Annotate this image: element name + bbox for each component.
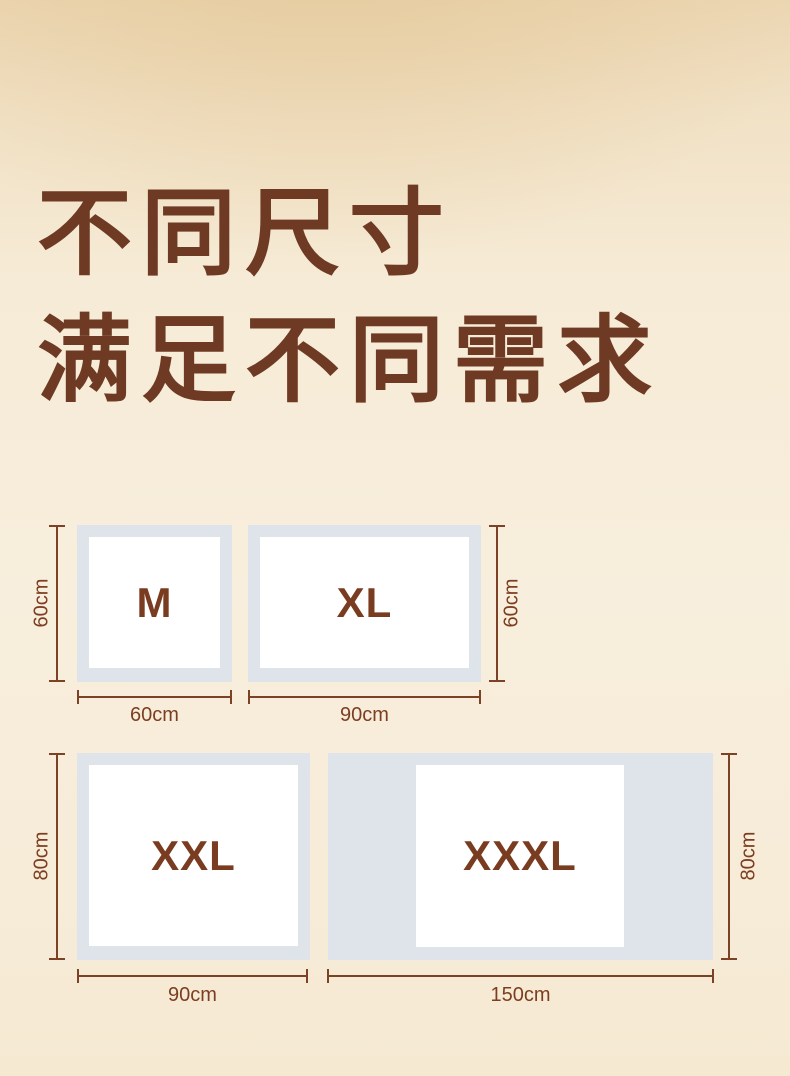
page-title-line2: 满足不同需求 — [37, 298, 661, 425]
size-label-xxxl: XXXL — [463, 832, 577, 880]
pad-core-m: M — [89, 537, 220, 668]
width-dimension-label-xxl: 90cm — [77, 984, 308, 1007]
pad-outer-xxl: XXL — [77, 753, 310, 960]
pad-core-xxxl: XXXL — [416, 765, 624, 947]
width-dimension-line-xl — [248, 696, 481, 698]
height-dimension-label-xl: 60cm — [501, 579, 524, 628]
width-dimension-line-xxl — [77, 975, 308, 977]
page-title: 不同尺寸 满足不同需求 — [37, 171, 661, 425]
pad-core-xl: XL — [260, 537, 469, 668]
height-dimension-label-m: 60cm — [31, 579, 54, 628]
width-dimension-label-xl: 90cm — [248, 704, 481, 727]
width-dimension-line-m — [77, 696, 232, 698]
pad-outer-m: M — [77, 525, 232, 682]
pad-outer-xxxl: XXXL — [328, 753, 713, 960]
height-dimension-label-xxl: 80cm — [31, 832, 54, 881]
height-dimension-line-m — [56, 525, 58, 682]
width-dimension-label-xxxl: 150cm — [327, 984, 714, 1007]
height-dimension-line-xl — [496, 525, 498, 682]
height-dimension-line-xxxl — [728, 753, 730, 960]
width-dimension-line-xxxl — [327, 975, 714, 977]
height-dimension-label-xxxl: 80cm — [738, 832, 761, 881]
pad-outer-xl: XL — [248, 525, 481, 682]
size-label-m: M — [137, 579, 173, 627]
pad-core-xxl: XXL — [89, 765, 298, 946]
size-label-xxl: XXL — [151, 832, 236, 880]
page-title-line1: 不同尺寸 — [37, 171, 661, 298]
size-infographic: 不同尺寸 满足不同需求 M 60cm 60cm XL 60cm 90cm XXL — [0, 0, 790, 1076]
height-dimension-line-xxl — [56, 753, 58, 960]
width-dimension-label-m: 60cm — [77, 704, 232, 727]
size-label-xl: XL — [337, 579, 393, 627]
